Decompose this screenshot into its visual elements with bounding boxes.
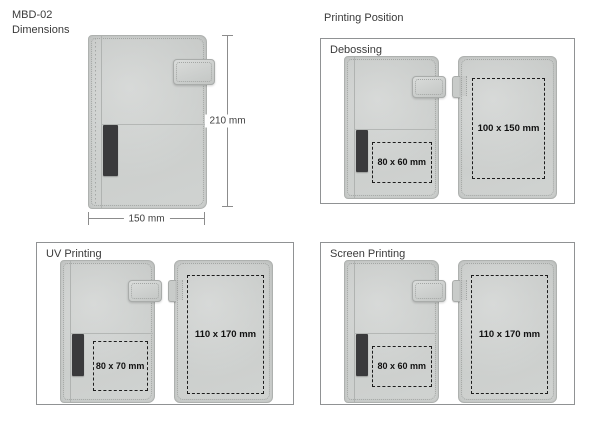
spine-seam xyxy=(70,261,71,402)
closure-tab xyxy=(173,59,215,85)
panel-uv-printing-title: UV Printing xyxy=(46,248,102,260)
spine-seam xyxy=(354,57,355,198)
front-print-area-label: 80 x 70 mm xyxy=(96,361,145,371)
dimension-tick xyxy=(222,35,233,36)
front-print-area: 80 x 60 mm xyxy=(372,142,432,183)
pen-loop xyxy=(356,334,368,376)
notebook-front-view xyxy=(88,35,207,209)
product-code: MBD-02 xyxy=(12,8,69,23)
dimension-tick xyxy=(88,212,89,225)
back-print-area-label: 110 x 170 mm xyxy=(195,329,256,340)
pen-loop xyxy=(72,334,84,376)
dimension-tick xyxy=(222,206,233,207)
notebook-back-view: 110 x 170 mm xyxy=(174,260,273,403)
printing-position-heading: Printing Position xyxy=(324,12,404,24)
notebook-front-view: 80 x 60 mm xyxy=(344,260,439,403)
width-dimension-label: 150 mm xyxy=(123,212,169,225)
panel-debossing-title: Debossing xyxy=(330,44,382,56)
dimensions-heading: Dimensions xyxy=(12,23,69,38)
product-spec-sheet: MBD-02 Dimensions 210 mm 150 mm Printing… xyxy=(0,0,600,424)
front-print-area: 80 x 70 mm xyxy=(93,341,148,391)
front-print-area-label: 80 x 60 mm xyxy=(378,157,427,167)
product-header: MBD-02 Dimensions xyxy=(12,8,69,38)
notebook-back-view: 100 x 150 mm xyxy=(458,56,557,199)
panel-debossing: Debossing 80 x 60 mm 100 x 150 mm xyxy=(320,38,575,204)
pen-loop xyxy=(356,130,368,172)
pen-loop xyxy=(103,125,118,177)
notebook-front-view: 80 x 60 mm xyxy=(344,56,439,199)
closure-tab-seam xyxy=(459,76,467,96)
back-print-area: 110 x 170 mm xyxy=(187,275,265,394)
panel-uv-printing: UV Printing 80 x 70 mm 110 x 170 mm xyxy=(36,242,294,405)
notebook-front-view: 80 x 70 mm xyxy=(60,260,155,403)
closure-tab-seam xyxy=(175,280,183,300)
spine-seam xyxy=(101,36,102,208)
back-print-area-label: 110 x 170 mm xyxy=(479,329,540,340)
panel-screen-printing-title: Screen Printing xyxy=(330,248,405,260)
closure-tab-seam xyxy=(459,280,467,300)
front-print-area-label: 80 x 60 mm xyxy=(378,361,427,371)
spine-stitch-line xyxy=(95,38,96,206)
front-print-area: 80 x 60 mm xyxy=(372,346,432,387)
height-dimension-label: 210 mm xyxy=(204,115,250,128)
back-print-area-label: 100 x 150 mm xyxy=(478,123,540,134)
spine-seam xyxy=(354,261,355,402)
closure-tab xyxy=(128,280,162,302)
back-print-area: 100 x 150 mm xyxy=(472,78,546,179)
notebook-back-view: 110 x 170 mm xyxy=(458,260,557,403)
back-print-area: 110 x 170 mm xyxy=(471,275,549,394)
panel-screen-printing: Screen Printing 80 x 60 mm 110 x 170 mm xyxy=(320,242,575,405)
height-dimension-line: 210 mm xyxy=(227,35,228,207)
width-dimension-line: 150 mm xyxy=(88,218,205,219)
closure-tab xyxy=(412,280,446,302)
closure-tab xyxy=(412,76,446,98)
dimension-tick xyxy=(204,212,205,225)
